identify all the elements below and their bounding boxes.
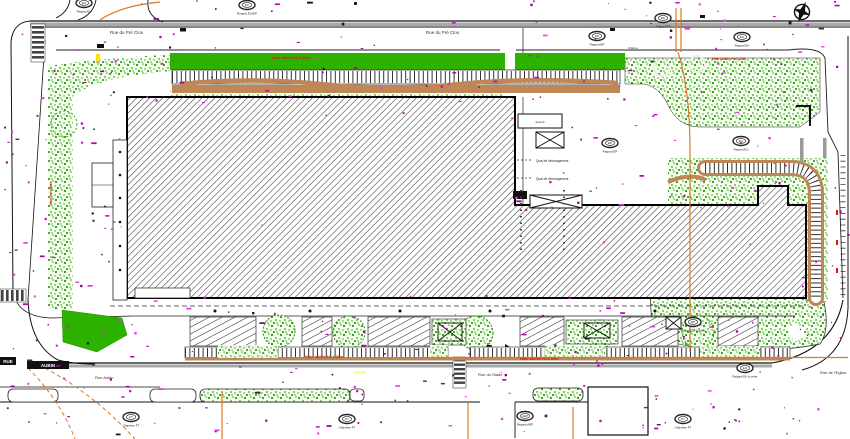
neighbor-parcel bbox=[588, 387, 648, 435]
survey-point bbox=[731, 187, 733, 189]
survey-point bbox=[603, 241, 605, 243]
survey-point bbox=[753, 389, 755, 391]
survey-point bbox=[362, 394, 364, 396]
survey-point bbox=[535, 77, 540, 79]
survey-point bbox=[654, 114, 658, 115]
survey-point bbox=[465, 396, 467, 397]
survey-point bbox=[72, 74, 73, 75]
survey-point bbox=[54, 70, 56, 72]
survey-point bbox=[297, 42, 300, 43]
survey-point bbox=[380, 421, 382, 423]
bottom-road-surface bbox=[55, 365, 772, 368]
survey-point bbox=[799, 420, 800, 421]
survey-point bbox=[528, 373, 531, 376]
survey-point bbox=[22, 34, 24, 36]
survey-point bbox=[606, 308, 611, 310]
survey-point bbox=[11, 131, 13, 133]
survey-point bbox=[91, 142, 96, 144]
dock-label-2: Quai de déchargement bbox=[536, 177, 569, 181]
survey-point bbox=[537, 55, 538, 56]
survey-point bbox=[45, 139, 46, 140]
top-road-surface bbox=[30, 23, 850, 27]
survey-point bbox=[777, 355, 779, 357]
survey-point bbox=[773, 58, 775, 60]
parking-cross-box-3 bbox=[666, 317, 681, 329]
hedge-label-top: Haie taillée H=1.80m bbox=[272, 55, 311, 60]
survey-point bbox=[643, 427, 644, 428]
survey-point bbox=[403, 112, 405, 114]
survey-point bbox=[361, 48, 364, 49]
median-island-1 bbox=[8, 389, 58, 402]
survey-point bbox=[533, 0, 535, 2]
top-branch-west bbox=[56, 0, 70, 18]
survey-point bbox=[259, 322, 264, 324]
median-island-2 bbox=[150, 389, 196, 402]
survey-point bbox=[47, 324, 49, 326]
road-point bbox=[650, 23, 651, 24]
road-point bbox=[342, 23, 345, 26]
survey-point bbox=[104, 228, 107, 229]
survey-point bbox=[692, 309, 694, 311]
hedge-green-overlay-2 bbox=[430, 345, 448, 358]
survey-point bbox=[126, 386, 130, 387]
manhole-label: Regard EU/EP bbox=[237, 12, 257, 16]
survey-point bbox=[619, 204, 624, 206]
survey-point bbox=[132, 324, 133, 325]
road-point bbox=[255, 392, 261, 394]
survey-point bbox=[44, 413, 47, 414]
survey-point bbox=[806, 24, 810, 25]
street-label-top-right: Rue du Pré Clos bbox=[426, 30, 460, 35]
survey-point bbox=[660, 257, 661, 258]
left-road-east-edge bbox=[28, 40, 45, 300]
survey-point bbox=[374, 45, 375, 46]
survey-point bbox=[501, 418, 503, 420]
manhole-inner-text: EP bbox=[691, 320, 695, 324]
manhole-symbol: FT Chambre FT bbox=[675, 415, 692, 430]
manhole-label: Regard EP bbox=[590, 43, 605, 47]
survey-point bbox=[693, 409, 694, 410]
survey-point bbox=[274, 313, 276, 315]
survey-point bbox=[370, 70, 371, 71]
road-point bbox=[649, 2, 651, 4]
manhole-symbol: AEP Regard AEP bbox=[517, 412, 534, 427]
survey-point bbox=[9, 252, 11, 253]
street-label-bottom-center: Rue du Stade bbox=[478, 372, 503, 377]
survey-point bbox=[100, 71, 104, 73]
survey-point bbox=[542, 315, 544, 317]
survey-point bbox=[785, 165, 787, 167]
survey-point bbox=[154, 300, 158, 301]
survey-point bbox=[121, 226, 122, 227]
road-point bbox=[554, 344, 556, 346]
manhole-inner-text: EU bbox=[82, 1, 86, 5]
survey-point bbox=[515, 197, 517, 199]
survey-point bbox=[524, 431, 525, 432]
survey-point bbox=[121, 396, 124, 397]
survey-point bbox=[724, 19, 727, 22]
survey-point bbox=[130, 356, 134, 358]
manhole-symbol: EP Regard EP bbox=[655, 14, 671, 29]
survey-point bbox=[113, 222, 116, 223]
survey-point bbox=[13, 274, 15, 276]
survey-point bbox=[603, 68, 604, 69]
survey-point bbox=[522, 334, 527, 336]
survey-point bbox=[817, 408, 819, 410]
road-point bbox=[585, 338, 590, 340]
survey-point bbox=[766, 49, 768, 51]
site-plan-page: RUE AUBIN Rue du Pré Clos Rue du Pré Clo… bbox=[0, 0, 850, 439]
survey-point bbox=[831, 322, 832, 323]
survey-point bbox=[717, 11, 719, 13]
road-point bbox=[15, 250, 18, 251]
survey-point bbox=[821, 46, 824, 47]
survey-point bbox=[275, 3, 280, 5]
survey-point bbox=[508, 393, 511, 394]
manhole-label: Regard AEP bbox=[517, 423, 534, 427]
manhole-symbol: FT Chambre FT bbox=[339, 415, 356, 430]
survey-point bbox=[441, 85, 443, 87]
catch-basins bbox=[97, 15, 705, 48]
survey-point bbox=[75, 282, 79, 283]
road-point bbox=[819, 28, 824, 30]
road-point bbox=[65, 35, 67, 37]
survey-point bbox=[353, 386, 356, 389]
survey-point bbox=[111, 229, 112, 230]
manhole-inner-text: EP bbox=[595, 34, 599, 38]
road-point bbox=[92, 220, 94, 222]
yellow-marker-2 bbox=[353, 371, 366, 374]
survey-point bbox=[458, 101, 461, 102]
survey-point bbox=[180, 82, 185, 84]
survey-point bbox=[625, 9, 626, 10]
survey-point bbox=[362, 404, 363, 405]
survey-point bbox=[622, 183, 624, 185]
survey-point bbox=[327, 425, 332, 427]
survey-point bbox=[505, 309, 509, 311]
survey-point bbox=[532, 98, 534, 100]
survey-point bbox=[650, 326, 655, 328]
survey-point bbox=[798, 51, 802, 53]
survey-point bbox=[478, 87, 480, 89]
road-point bbox=[116, 434, 121, 436]
road-point bbox=[723, 427, 725, 429]
survey-point bbox=[354, 317, 356, 319]
road-point bbox=[729, 422, 730, 423]
survey-point bbox=[642, 425, 644, 427]
manhole-symbol: EP Regard EP bbox=[589, 32, 605, 47]
survey-point bbox=[26, 165, 27, 166]
survey-point bbox=[441, 383, 445, 385]
survey-point bbox=[530, 4, 532, 6]
survey-point bbox=[832, 265, 833, 266]
survey-point bbox=[786, 99, 787, 100]
survey-point bbox=[594, 137, 598, 139]
survey-point bbox=[341, 36, 342, 37]
survey-point bbox=[79, 50, 80, 51]
survey-point bbox=[685, 28, 691, 30]
survey-point bbox=[56, 422, 57, 423]
survey-point bbox=[13, 348, 14, 349]
survey-point bbox=[97, 62, 100, 63]
survey-point bbox=[583, 385, 586, 388]
survey-point bbox=[104, 332, 106, 334]
survey-point bbox=[536, 21, 538, 23]
survey-point bbox=[607, 98, 609, 100]
manhole-symbol: EU Regard EU bbox=[733, 137, 749, 152]
survey-point bbox=[623, 98, 625, 100]
survey-point bbox=[529, 55, 531, 57]
survey-point bbox=[186, 308, 191, 310]
survey-point bbox=[763, 203, 764, 204]
survey-point bbox=[713, 406, 715, 408]
survey-point bbox=[110, 378, 112, 380]
manhole-inner-text: EU bbox=[245, 3, 249, 7]
survey-point bbox=[68, 326, 70, 328]
survey-point bbox=[42, 97, 44, 99]
survey-point bbox=[295, 368, 298, 369]
road-point bbox=[87, 342, 89, 344]
survey-point bbox=[736, 112, 739, 113]
survey-point bbox=[624, 67, 626, 69]
survey-point bbox=[23, 303, 28, 305]
survey-point bbox=[778, 182, 781, 185]
survey-point bbox=[516, 200, 521, 202]
survey-point bbox=[239, 367, 242, 368]
survey-point bbox=[601, 363, 603, 365]
road-point bbox=[583, 336, 585, 338]
survey-point bbox=[774, 163, 777, 164]
survey-point bbox=[834, 1, 836, 3]
survey-point bbox=[771, 346, 773, 348]
survey-point bbox=[683, 336, 685, 338]
survey-point bbox=[192, 351, 193, 352]
survey-point bbox=[27, 383, 29, 385]
survey-point bbox=[646, 15, 647, 16]
survey-point bbox=[629, 325, 631, 327]
survey-point bbox=[599, 420, 601, 422]
survey-point bbox=[159, 36, 161, 38]
survey-point bbox=[735, 420, 737, 422]
manhole-inner-text: FT bbox=[345, 417, 349, 421]
survey-point bbox=[322, 72, 324, 74]
survey-point bbox=[773, 16, 776, 17]
survey-point bbox=[80, 285, 82, 287]
survey-point bbox=[715, 48, 717, 50]
survey-point bbox=[202, 102, 205, 103]
survey-point bbox=[81, 122, 83, 124]
survey-point bbox=[63, 378, 66, 379]
hedge-label-bottom-2: Haie taillée H=1.80m bbox=[520, 356, 559, 361]
survey-point bbox=[361, 345, 366, 347]
road-point bbox=[215, 8, 217, 10]
road-point bbox=[5, 189, 6, 190]
utility-post-1 bbox=[800, 138, 804, 162]
road-point bbox=[33, 270, 34, 271]
manhole-label: Chambre FT bbox=[675, 426, 692, 430]
survey-point bbox=[448, 83, 449, 84]
road-point bbox=[327, 95, 329, 97]
survey-point bbox=[111, 72, 112, 73]
survey-point bbox=[161, 63, 163, 65]
survey-point bbox=[493, 81, 497, 83]
survey-point bbox=[740, 142, 742, 144]
manhole-inner-text: FT bbox=[129, 415, 133, 419]
survey-point bbox=[532, 418, 533, 419]
hedge-label-bottom-1: Haie taillée H=1.80m bbox=[305, 354, 344, 359]
survey-point bbox=[629, 70, 633, 71]
yellow-marker-1 bbox=[96, 54, 100, 61]
survey-point bbox=[708, 390, 712, 391]
survey-point bbox=[117, 59, 118, 60]
survey-point bbox=[776, 105, 777, 106]
survey-point bbox=[67, 416, 70, 417]
survey-point bbox=[56, 345, 58, 347]
survey-point bbox=[158, 388, 163, 390]
manhole-label: Regard EU à créer bbox=[732, 375, 757, 379]
orange-arc-top-left bbox=[100, 2, 160, 20]
survey-point bbox=[28, 421, 30, 423]
survey-point bbox=[608, 3, 609, 4]
road-point bbox=[789, 22, 792, 25]
survey-point bbox=[154, 18, 159, 20]
road-point bbox=[4, 127, 6, 129]
survey-point bbox=[141, 3, 142, 4]
top-left-corner-curve bbox=[11, 21, 30, 42]
survey-point bbox=[670, 36, 672, 38]
survey-point bbox=[173, 33, 175, 35]
survey-point bbox=[81, 142, 83, 144]
manhole-inner-text: AEP bbox=[522, 414, 528, 418]
survey-point bbox=[627, 355, 630, 356]
survey-point bbox=[119, 138, 121, 140]
survey-point bbox=[736, 330, 738, 332]
hedge-label-left: Haie existante bbox=[49, 181, 53, 205]
survey-point bbox=[511, 118, 513, 120]
survey-point bbox=[800, 329, 801, 330]
survey-point bbox=[325, 334, 328, 335]
survey-point bbox=[52, 257, 55, 258]
survey-point bbox=[763, 44, 765, 46]
survey-point bbox=[739, 421, 741, 423]
survey-point bbox=[154, 423, 155, 424]
survey-point bbox=[540, 97, 541, 98]
zebra-top-left bbox=[31, 24, 45, 62]
utility-post-2 bbox=[823, 138, 827, 158]
survey-point bbox=[786, 433, 788, 435]
survey-point bbox=[316, 426, 320, 427]
road-point bbox=[282, 382, 283, 383]
road-point bbox=[7, 407, 9, 409]
survey-point bbox=[717, 129, 720, 130]
survey-point bbox=[596, 187, 598, 189]
manhole-label: Chambre FT bbox=[339, 426, 356, 430]
survey-point bbox=[525, 209, 527, 211]
road-point bbox=[655, 398, 657, 400]
road-point bbox=[240, 28, 243, 29]
name-plate-text-2: AUBIN bbox=[41, 363, 55, 368]
survey-point bbox=[289, 95, 293, 96]
survey-point bbox=[205, 407, 208, 408]
road-point bbox=[810, 89, 812, 91]
survey-point bbox=[721, 39, 722, 40]
road-point bbox=[452, 374, 454, 376]
survey-point bbox=[23, 242, 28, 244]
survey-point bbox=[839, 210, 841, 212]
survey-point bbox=[613, 300, 615, 302]
survey-point bbox=[685, 100, 686, 101]
name-plate-text-1: RUE bbox=[3, 359, 13, 364]
survey-point bbox=[640, 175, 645, 177]
survey-point bbox=[394, 400, 396, 402]
survey-point bbox=[709, 326, 713, 327]
survey-point bbox=[407, 79, 408, 80]
survey-point bbox=[37, 115, 39, 117]
survey-point bbox=[568, 298, 571, 299]
survey-point bbox=[835, 187, 837, 189]
road-point bbox=[91, 212, 94, 215]
road-point bbox=[113, 91, 115, 93]
survey-point bbox=[6, 161, 8, 163]
road-point bbox=[332, 374, 334, 376]
manhole-label: Regard EU bbox=[735, 44, 750, 48]
survey-point bbox=[83, 388, 84, 389]
north-arrow-icon bbox=[790, 0, 814, 25]
survey-point bbox=[620, 312, 625, 314]
survey-point bbox=[644, 407, 648, 408]
survey-point bbox=[290, 372, 293, 373]
survey-point bbox=[146, 346, 149, 347]
bottom-hedge bbox=[185, 345, 790, 374]
survey-point bbox=[802, 277, 805, 278]
survey-point bbox=[580, 139, 582, 141]
survey-point bbox=[84, 82, 87, 83]
zebra-bottom-center bbox=[453, 357, 466, 388]
survey-point bbox=[265, 420, 267, 422]
survey-point bbox=[783, 91, 785, 93]
survey-point bbox=[665, 422, 666, 423]
survey-point bbox=[791, 377, 793, 379]
survey-point bbox=[16, 139, 20, 140]
building-dock-notch bbox=[135, 288, 190, 298]
survey-point bbox=[322, 321, 323, 322]
building-west-walkway bbox=[113, 140, 127, 300]
survey-point bbox=[88, 285, 93, 287]
survey-point bbox=[749, 66, 751, 68]
hedge-label-lawn: Haie taillée H=1.80m bbox=[712, 57, 746, 61]
survey-point bbox=[675, 2, 679, 4]
survey-point bbox=[215, 47, 216, 48]
road-point bbox=[82, 127, 84, 129]
survey-point bbox=[835, 5, 840, 7]
orange-dashed-arc-1 bbox=[45, 368, 135, 439]
survey-point bbox=[203, 296, 205, 298]
survey-point bbox=[752, 322, 754, 324]
road-point bbox=[169, 47, 171, 49]
survey-point bbox=[750, 244, 751, 245]
zebra-bottom-left bbox=[0, 289, 26, 302]
survey-point bbox=[674, 140, 677, 141]
dock-label-1: Quai de déchargement bbox=[536, 159, 569, 163]
survey-point bbox=[214, 430, 219, 432]
road-point bbox=[661, 324, 662, 325]
survey-point bbox=[759, 371, 761, 373]
green-band-gap bbox=[505, 53, 515, 70]
survey-point bbox=[780, 63, 782, 65]
survey-point bbox=[363, 331, 365, 333]
road-point bbox=[502, 315, 505, 318]
survey-point bbox=[717, 63, 719, 65]
